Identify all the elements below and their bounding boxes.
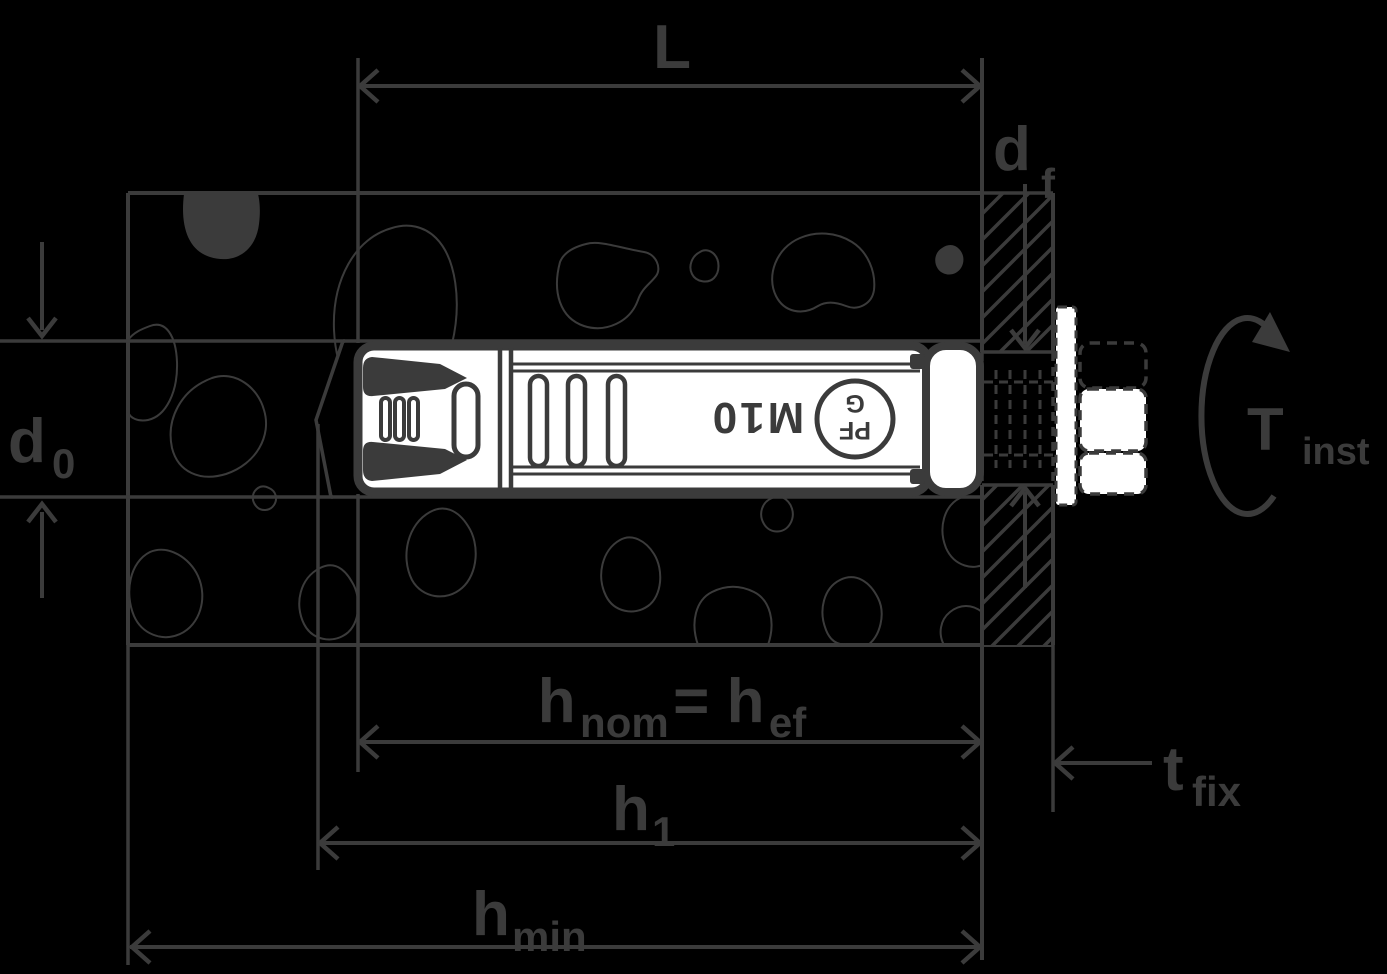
label-hnom-hef: h nom = h ef: [538, 667, 808, 746]
brand-logo: PF G: [817, 381, 893, 457]
aggregate-blob: [822, 577, 881, 645]
fixture-lower-hatch: [982, 485, 1053, 645]
sleeve-anchor: M10 PF G: [358, 346, 980, 492]
nut-bottom-facet: [1080, 453, 1146, 494]
threaded-rod-hidden: [984, 370, 1053, 468]
brand-logo-line2: G: [845, 389, 864, 417]
brand-logo-line1: PF: [839, 416, 871, 444]
label-tinst: T inst: [1247, 396, 1370, 473]
sleeve-end-hook-upper: [910, 354, 925, 369]
anchor-end-collar: [926, 346, 980, 492]
aggregate-blob: [694, 587, 771, 645]
clip-rib: [395, 398, 404, 440]
nut-middle-facet: [1080, 389, 1146, 451]
sleeve-slot: [568, 376, 585, 466]
label-tfix: t fix: [1163, 735, 1242, 815]
sleeve-end-hook-lower: [910, 469, 925, 484]
label-h1: h 1: [612, 775, 675, 855]
aggregate-blob: [772, 233, 874, 311]
aggregate-blob: [690, 250, 718, 281]
fixture-plate: [982, 193, 1053, 645]
hex-nut: [1080, 343, 1146, 494]
clip-rib: [409, 398, 418, 440]
aggregate-blob: [761, 496, 793, 531]
diagram-canvas: M10 PF G L d f d 0: [0, 0, 1387, 974]
clip-rib: [381, 398, 390, 440]
sleeve-slot: [530, 376, 547, 466]
aggregate-dark-blob: [183, 194, 260, 259]
label-L: L: [653, 13, 691, 82]
washer: [1056, 307, 1076, 505]
aggregate-blob: [299, 565, 358, 639]
label-hmin: h min: [472, 880, 587, 960]
aggregate-blob: [128, 325, 177, 421]
dim-fixture-thickness: t fix: [1053, 645, 1242, 815]
thread-hidden-lines: [996, 370, 1040, 468]
label-d0: d 0: [8, 407, 75, 487]
aggregate-blob: [129, 550, 202, 637]
size-marking-group: M10: [710, 393, 805, 442]
technical-diagram-sleeve-anchor: M10 PF G L d f d 0: [0, 0, 1387, 974]
aggregate-blob: [406, 508, 475, 596]
aggregate-blob: [557, 243, 658, 328]
aggregate-dark-blob: [935, 245, 963, 275]
nut-top-facet: [1080, 343, 1146, 388]
anchor-size-marking: M10: [710, 393, 805, 442]
expansion-slot: [454, 384, 478, 457]
aggregate-blob: [601, 537, 660, 611]
thread-root-lines: [984, 382, 1053, 455]
aggregate-blob: [171, 376, 266, 477]
fixture-upper-hatch: [982, 193, 1053, 352]
sleeve-slot: [608, 376, 625, 466]
dim-embedment-depth: h nom = h ef: [358, 667, 982, 758]
torque-symbol: T inst: [1201, 312, 1369, 514]
